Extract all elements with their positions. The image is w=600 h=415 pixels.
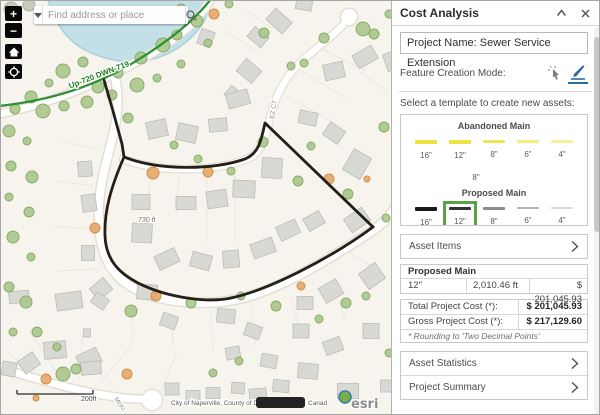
template-row: 16"12"8"6"4" — [401, 204, 587, 227]
tree-orange — [209, 9, 219, 19]
building — [132, 223, 153, 243]
building — [55, 291, 83, 311]
tree — [307, 142, 315, 150]
building — [206, 189, 228, 209]
tree — [59, 101, 69, 111]
tree — [293, 176, 303, 186]
tree-orange — [147, 167, 159, 179]
template-item[interactable]: 12" — [443, 137, 477, 160]
asset-cost-cell: $ 201,045.93 — [529, 279, 587, 293]
close-panel-button[interactable] — [577, 6, 593, 20]
search-button[interactable] — [185, 6, 197, 24]
building — [233, 180, 256, 198]
tree — [227, 167, 235, 175]
template-item[interactable]: 8" — [477, 137, 511, 160]
pipe-swatch — [465, 163, 487, 166]
building — [363, 324, 379, 339]
pipe-swatch — [551, 140, 573, 143]
locate-icon — [8, 66, 20, 78]
tree — [235, 357, 243, 365]
tree — [125, 305, 137, 317]
chevron-down-icon — [34, 13, 42, 18]
template-group-title: Proposed Main — [401, 188, 587, 198]
tree — [319, 33, 329, 43]
pipe-swatch — [483, 207, 505, 210]
tree — [259, 28, 269, 38]
search-icon — [186, 10, 197, 21]
pipe-swatch — [483, 140, 505, 143]
template-size-label: 6" — [511, 150, 545, 159]
building — [231, 382, 245, 394]
pipe-swatch — [415, 140, 437, 144]
tree — [177, 60, 185, 68]
asset-statistics-row[interactable]: Asset Statistics — [401, 352, 587, 375]
template-item[interactable]: 16" — [409, 137, 443, 160]
scrollbar-thumb[interactable] — [594, 37, 600, 232]
building — [206, 388, 220, 399]
tree — [209, 369, 217, 377]
template-size-label: 8" — [459, 173, 493, 182]
tree — [300, 59, 308, 67]
tree — [6, 161, 16, 171]
tree — [24, 207, 34, 217]
culdesac — [142, 390, 162, 410]
cost-analysis-panel: Cost Analysis Project Name: Sewer Servic… — [391, 1, 600, 415]
template-size-label: 12" — [443, 151, 477, 160]
template-item[interactable]: 12" — [443, 204, 477, 227]
building — [145, 119, 168, 140]
building — [216, 308, 235, 324]
app-window: Up-720 DWN-719EZ CTMcKi730 ft200ftCity o… — [0, 0, 600, 415]
template-size-label: 12" — [443, 217, 477, 226]
building — [132, 195, 150, 210]
cost-group-header: Proposed Main — [401, 265, 587, 279]
building — [297, 363, 318, 380]
asset-items-row[interactable]: Asset Items — [401, 235, 587, 258]
tree — [20, 296, 32, 308]
panel-content: Project Name: Sewer Service Extension Fe… — [392, 26, 600, 415]
tree — [78, 57, 88, 67]
template-group-title: Abandoned Main — [401, 121, 587, 131]
tree — [3, 125, 15, 137]
template-item[interactable]: 16" — [409, 204, 443, 227]
tree — [287, 62, 295, 70]
esri-globe-icon — [339, 391, 351, 403]
template-size-label: 8" — [477, 217, 511, 226]
cost-summary-table: Proposed Main 12" 2,010.46 ft $ 201,045.… — [400, 264, 588, 294]
building — [273, 379, 290, 392]
template-row: 8" — [400, 160, 569, 182]
smart-mode-button[interactable] — [545, 63, 565, 83]
chevron-right-icon — [570, 381, 579, 394]
home-button[interactable] — [5, 44, 22, 59]
tree — [26, 171, 38, 183]
tree — [170, 141, 178, 149]
building — [81, 194, 97, 213]
template-item[interactable]: 4" — [545, 204, 579, 227]
template-size-label: 4" — [545, 216, 579, 225]
tree — [343, 189, 353, 199]
building — [176, 197, 196, 210]
pipe-swatch — [551, 207, 573, 209]
building — [222, 250, 239, 268]
pipe-swatch — [517, 207, 539, 210]
template-size-label: 6" — [511, 216, 545, 225]
project-summary-label: Project Summary — [409, 382, 570, 393]
template-size-label: 16" — [409, 151, 443, 160]
gross-cost-row: Gross Project Cost (*): $ 217,129.60 — [401, 314, 587, 329]
tree — [81, 96, 93, 108]
tree — [315, 315, 323, 323]
tree — [362, 292, 370, 300]
tree — [356, 22, 370, 36]
draw-mode-button[interactable] — [568, 62, 588, 84]
tree — [56, 367, 70, 381]
panel-header: Cost Analysis — [392, 1, 600, 26]
tree — [379, 122, 389, 132]
asset-items-label: Asset Items — [409, 241, 570, 252]
tree-orange — [364, 176, 370, 182]
home-icon — [8, 46, 20, 58]
total-cost-row: Total Project Cost (*): $ 201,045.93 — [401, 300, 587, 314]
divider — [399, 91, 592, 92]
total-cost-value: $ 201,045.93 — [518, 300, 587, 314]
asset-size-cell: 12" — [401, 279, 466, 293]
project-summary-row[interactable]: Project Summary — [401, 375, 587, 399]
tree — [382, 214, 390, 222]
building — [77, 161, 92, 177]
basemap-svg: Up-720 DWN-719EZ CTMcKi730 ft200ftCity o… — [1, 1, 391, 415]
template-item[interactable]: 4" — [545, 137, 579, 160]
search-input[interactable] — [43, 6, 185, 24]
tree — [71, 364, 81, 374]
table-row: 12" 2,010.46 ft $ 201,045.93 — [401, 279, 587, 293]
tree — [5, 193, 13, 201]
tree — [7, 231, 19, 243]
template-item[interactable]: 8" — [477, 204, 511, 227]
building — [293, 324, 309, 338]
building — [208, 118, 227, 133]
chevron-right-icon — [570, 240, 579, 253]
template-row: 16"12"8"6"4" — [401, 137, 587, 160]
gross-cost-value: $ 217,129.60 — [518, 315, 587, 329]
tree — [45, 79, 53, 87]
template-prompt: Select a template to create new assets: — [400, 98, 588, 109]
asset-length-cell: 2,010.46 ft — [466, 279, 529, 293]
zoom-in-button[interactable]: + — [5, 6, 22, 21]
tree — [23, 137, 31, 145]
project-name: Project Name: Sewer Service Extension — [400, 32, 588, 54]
tree-orange — [297, 282, 305, 290]
pipe-swatch — [517, 140, 539, 143]
close-icon — [581, 9, 590, 18]
tree — [225, 1, 233, 8]
tree — [9, 328, 17, 336]
map-canvas[interactable]: Up-720 DWN-719EZ CTMcKi730 ft200ftCity o… — [1, 1, 391, 415]
template-picker: Abandoned Main16"12"8"6"4"8"Proposed Mai… — [400, 114, 588, 226]
template-size-label: 4" — [545, 150, 579, 159]
tree-orange — [203, 167, 213, 177]
template-item[interactable]: 6" — [511, 204, 545, 227]
pipe-swatch — [415, 207, 437, 211]
asset-items-section: Asset Items — [400, 234, 588, 259]
template-size-label: 16" — [409, 218, 443, 227]
panel-title: Cost Analysis — [400, 6, 545, 20]
tree — [194, 155, 202, 163]
tree-orange — [41, 374, 51, 384]
tree — [53, 343, 61, 351]
pencil-icon — [570, 65, 586, 80]
collapse-panel-button[interactable] — [553, 6, 569, 20]
tree — [27, 253, 35, 261]
more-sections: Asset Statistics Project Summary — [400, 351, 588, 400]
pipe-swatch — [449, 140, 471, 144]
pipe-swatch — [449, 207, 471, 211]
tree — [56, 64, 70, 78]
building — [165, 383, 179, 395]
tree — [341, 298, 351, 308]
tree-orange — [33, 395, 39, 401]
chevron-right-icon — [570, 357, 579, 370]
total-cost-label: Total Project Cost (*): — [401, 300, 518, 314]
tree — [204, 39, 212, 47]
attribution-text: City of Naperville, County of Du — [171, 400, 262, 407]
culdesac — [341, 9, 357, 25]
building — [80, 361, 101, 376]
building — [175, 123, 198, 144]
feature-mode-label: Feature Creation Mode: — [400, 68, 542, 79]
panel-scrollbar[interactable] — [594, 27, 600, 414]
tree — [153, 74, 161, 82]
chevron-up-icon — [556, 9, 567, 17]
building — [84, 329, 91, 337]
template-size-label: 8" — [477, 150, 511, 159]
building — [297, 297, 313, 310]
tree — [130, 78, 144, 92]
building — [1, 361, 17, 377]
tree — [271, 301, 281, 311]
tree-orange — [90, 223, 100, 233]
locate-button[interactable] — [5, 64, 22, 79]
zoom-out-button[interactable]: − — [5, 23, 22, 38]
template-item[interactable]: 6" — [511, 137, 545, 160]
distance-label: 730 ft — [138, 217, 157, 224]
tree — [4, 282, 14, 292]
search-box — [34, 6, 188, 24]
attribution-text: Canad — [308, 400, 328, 407]
asset-statistics-label: Asset Statistics — [409, 358, 570, 369]
building — [260, 353, 278, 369]
tree — [123, 113, 133, 123]
tree — [32, 327, 42, 337]
rounding-footnote: * Rounding to 'Two Decimal Points' — [401, 329, 587, 342]
scale-label: 200ft — [81, 396, 97, 403]
gross-cost-label: Gross Project Cost (*): — [401, 315, 518, 329]
esri-logo: esri — [351, 397, 378, 412]
building — [261, 157, 282, 178]
building — [381, 380, 392, 392]
tree — [36, 104, 50, 118]
wand-cursor-icon — [547, 65, 563, 81]
search-source-dropdown[interactable] — [34, 6, 43, 24]
building — [82, 246, 95, 261]
totals-table: Total Project Cost (*): $ 201,045.93 Gro… — [400, 299, 588, 343]
tree-orange — [122, 369, 132, 379]
template-item[interactable]: 8" — [459, 160, 493, 182]
attribution-overlay — [256, 397, 305, 408]
tree — [369, 29, 379, 39]
